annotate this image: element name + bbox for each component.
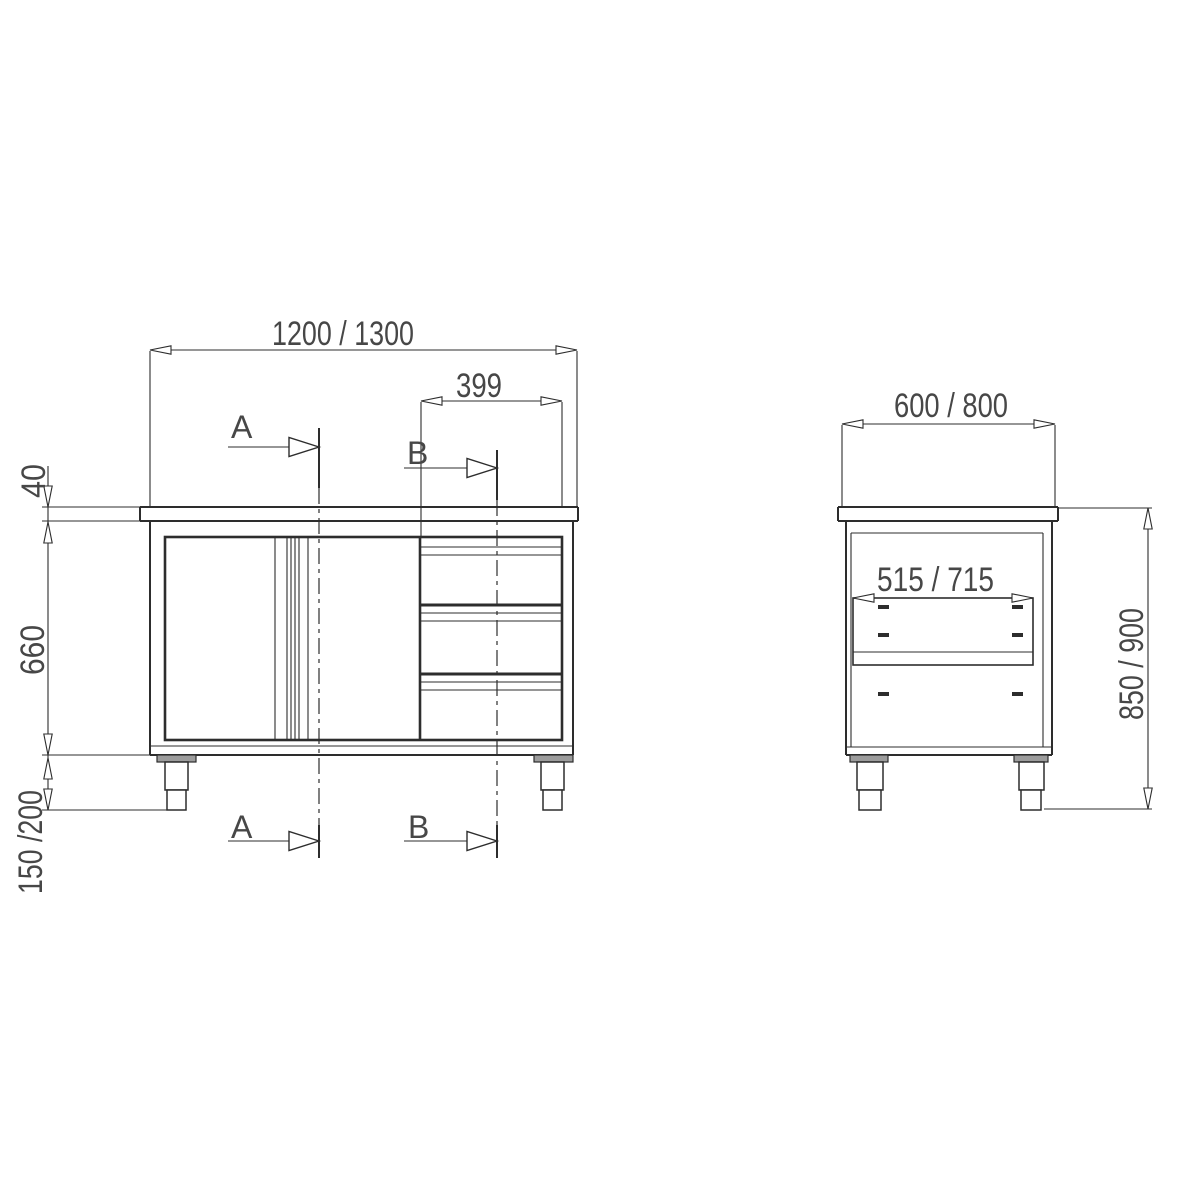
drawing-svg: 1200 / 1300 399 A B A: [0, 0, 1200, 1200]
leg-flange: [850, 755, 888, 762]
leg-body: [541, 762, 564, 790]
dim-inner-depth-label: 515 / 715: [877, 561, 994, 599]
dim-total-height: 850 / 900: [1044, 508, 1152, 809]
section-b-bottom: B: [404, 809, 497, 858]
dim-leg-height-label: 150 /200: [12, 790, 50, 894]
dim-worktop-thickness-label: 40: [15, 464, 53, 498]
sliding-doors: [275, 538, 308, 739]
front-view: 1200 / 1300 399 A B A: [12, 315, 578, 894]
dim-arrow-right: [556, 346, 577, 354]
dim-arrow-down: [1144, 788, 1152, 809]
leg-flange: [534, 755, 573, 762]
dim-arrow-up: [1144, 508, 1152, 529]
dim-total-width: 1200 / 1300: [150, 315, 577, 506]
leg-flange: [1014, 755, 1048, 762]
dim-total-height-label: 850 / 900: [1113, 608, 1151, 720]
dim-arrow-up: [44, 758, 52, 779]
mounting-tick: [878, 605, 889, 609]
dim-drawer-width: 399: [421, 367, 562, 537]
dim-arrow-right: [1034, 420, 1055, 428]
dim-arrow-right: [541, 397, 562, 405]
dim-total-depth-label: 600 / 800: [894, 387, 1008, 425]
mounting-tick: [878, 633, 889, 637]
mounting-tick: [1012, 605, 1023, 609]
mounting-tick: [1012, 633, 1023, 637]
dim-drawer-width-label: 399: [456, 367, 502, 405]
section-arrow-icon: [289, 438, 319, 457]
section-b-label: B: [407, 435, 428, 471]
leg-body: [857, 762, 883, 790]
cabinet-body-side: [846, 521, 1052, 755]
drawer-block: [420, 538, 562, 739]
body-opening-outline: [165, 537, 562, 740]
dim-body-height-label: 660: [14, 625, 52, 675]
dim-arrow-left: [150, 346, 171, 354]
leg-body: [1019, 762, 1044, 790]
dim-arrow-left: [421, 397, 442, 405]
front-left-leg: [157, 755, 196, 810]
section-arrow-icon: [467, 459, 497, 478]
leg-flange: [157, 755, 196, 762]
dim-left-chain: 40 660 150 /200: [12, 464, 167, 894]
technical-drawing-cabinet: 1200 / 1300 399 A B A: [0, 0, 1200, 1200]
worktop-side: [838, 507, 1058, 521]
side-left-leg: [850, 755, 888, 810]
dim-total-depth: 600 / 800: [842, 387, 1055, 506]
dim-arrow-left: [842, 420, 863, 428]
leg-foot: [167, 790, 186, 810]
section-a-top: A: [228, 409, 319, 488]
front-right-leg: [534, 755, 573, 810]
cabinet-body-front: [150, 521, 573, 755]
section-arrow-icon: [289, 832, 319, 851]
mounting-tick: [878, 692, 889, 696]
section-a-bottom: A: [228, 809, 319, 858]
leg-foot: [1021, 790, 1041, 810]
dim-arrow-left: [853, 594, 874, 602]
section-a-label: A: [231, 809, 253, 845]
dim-arrow-right: [1012, 594, 1033, 602]
section-arrow-icon: [467, 832, 497, 851]
dim-arrow-up: [44, 522, 52, 543]
section-b-label: B: [408, 809, 429, 845]
leg-foot: [859, 790, 881, 810]
leg-foot: [543, 790, 562, 810]
side-view: 600 / 800 515 / 715: [838, 387, 1152, 810]
dim-arrow-down: [44, 734, 52, 755]
side-right-leg: [1014, 755, 1048, 810]
leg-body: [165, 762, 188, 790]
section-b-top: B: [404, 435, 497, 500]
mounting-tick: [1012, 692, 1023, 696]
dim-total-width-label: 1200 / 1300: [272, 315, 414, 353]
section-a-label: A: [231, 409, 253, 445]
dim-inner-depth: 515 / 715: [853, 561, 1033, 696]
